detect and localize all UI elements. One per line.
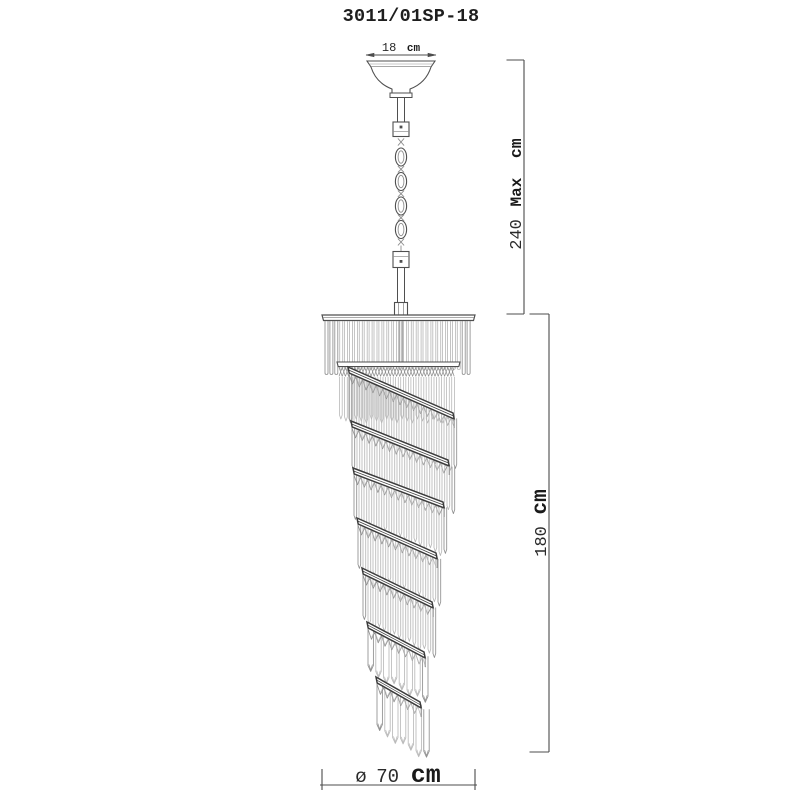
dim-diameter-symbol: ø xyxy=(355,766,366,788)
dim-max-height-unit: cm xyxy=(507,138,526,158)
dim-canopy-width-value: 18 xyxy=(382,41,396,55)
dim-diameter-unit: cm xyxy=(411,761,441,790)
product-title: 3011/01SP-18 xyxy=(343,6,480,27)
dim-canopy-width-label: 18 cm xyxy=(382,38,421,56)
dim-max-height-word: Max xyxy=(508,177,526,206)
dim-canopy-width-unit: cm xyxy=(407,43,421,55)
suspension-chain xyxy=(393,97,409,315)
chandelier-dimension-diagram: 3011/01SP-18 18 cm 240 Max cm 180 cm ø 7… xyxy=(0,0,800,800)
ceiling-canopy xyxy=(367,61,435,98)
chandelier-body xyxy=(322,315,475,423)
line-art xyxy=(320,53,549,790)
dim-body-height-label: 180 cm xyxy=(530,489,553,556)
dim-diameter-value: 70 xyxy=(376,766,399,788)
dim-body-height-value: 180 xyxy=(533,526,552,557)
dim-max-height-label: 240 Max cm xyxy=(507,138,527,250)
dim-max-height-value: 240 xyxy=(508,219,527,250)
technical-drawing-page: 3011/01SP-18 18 cm 240 Max cm 180 cm ø 7… xyxy=(0,0,800,800)
dim-diameter-label: ø 70 cm xyxy=(355,761,440,790)
dim-body-height-unit: cm xyxy=(530,489,553,514)
